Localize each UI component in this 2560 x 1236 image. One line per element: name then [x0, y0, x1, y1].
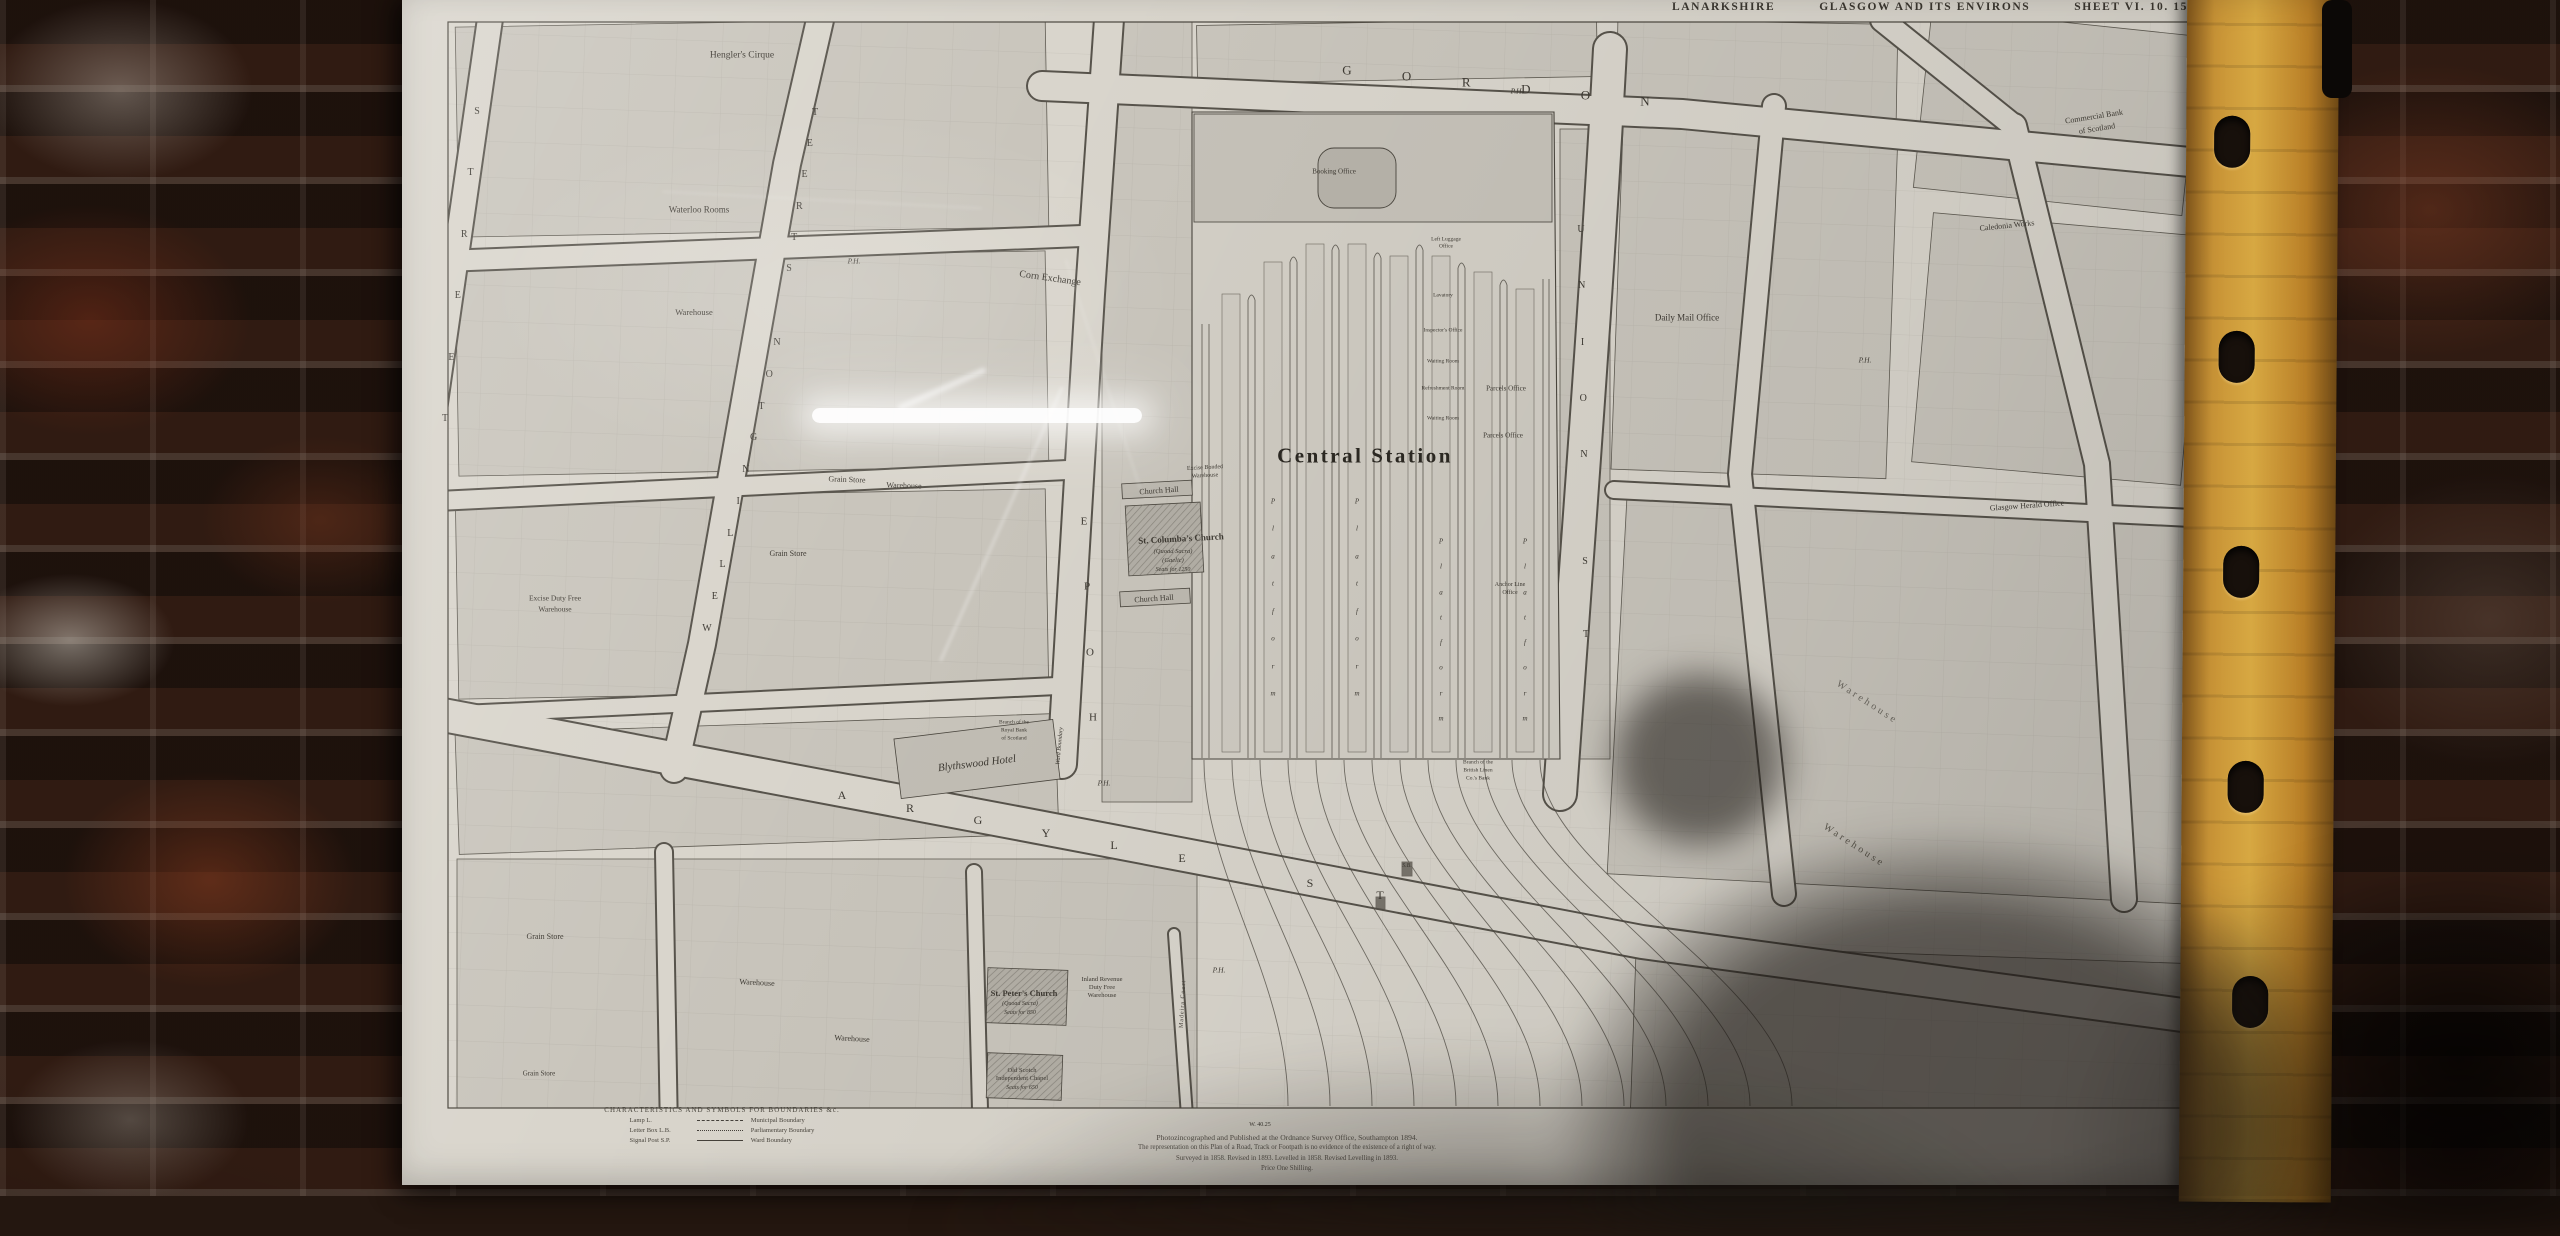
- map-label: British Linen: [1463, 768, 1492, 774]
- street-letter: L: [727, 529, 733, 539]
- street-letter: a: [1355, 553, 1359, 560]
- map-label: Warehouse: [1821, 822, 1886, 869]
- imprint-line: Price One Shilling.: [962, 1164, 1612, 1174]
- street-letter: O: [1581, 88, 1590, 101]
- street-letter: r: [1440, 690, 1443, 697]
- street-letter: a: [1523, 589, 1527, 596]
- street-letter: I: [1581, 338, 1584, 348]
- map-label: Warehouse: [1834, 679, 1899, 726]
- map-label: Madeira Court: [1179, 980, 1188, 1028]
- map-label: Caledonia Works: [1979, 219, 2035, 233]
- map-label: (Quoad Sacra): [1154, 549, 1193, 556]
- street-letter: S: [1307, 877, 1314, 889]
- map-label: Church Hall: [1134, 594, 1174, 605]
- map-label: S.B.: [1402, 863, 1412, 869]
- binder-slot: [2322, 0, 2352, 98]
- street-letter: E: [807, 139, 813, 149]
- map-label: Waterloo Rooms: [669, 206, 730, 215]
- map-label: Warehouse: [834, 1034, 870, 1044]
- street-letter: f: [1356, 608, 1358, 615]
- map-label: Grain Store: [526, 933, 563, 941]
- street-letter: o: [1355, 636, 1359, 643]
- street-letter: o: [1439, 665, 1443, 672]
- street-letter: E: [712, 592, 718, 602]
- map-label: of Scotland: [1001, 736, 1026, 742]
- map-label: (Gaelic): [1162, 558, 1184, 565]
- binder-strip: [2179, 0, 2339, 1203]
- street-letter: E: [455, 291, 461, 301]
- map-label: Excise Bonded: [1187, 464, 1223, 472]
- map-label: Independent Chapel: [996, 1076, 1048, 1083]
- legend: CHARACTERISTICS AND SYMBOLS FOR BOUNDARI…: [542, 1106, 902, 1144]
- street-letter: t: [1272, 581, 1274, 588]
- map-label: Anchor Line: [1495, 582, 1526, 588]
- legend-line-sample: [697, 1140, 743, 1141]
- street-letter: T: [442, 414, 448, 424]
- street-letter: O: [1402, 70, 1411, 83]
- street-letter: t: [1356, 581, 1358, 588]
- street-letter: I: [736, 497, 739, 507]
- map-labels-layer: Central StationHengler's CirqueWaterloo …: [402, 0, 2204, 1185]
- legend-line-sample: [697, 1120, 743, 1121]
- street-letter: W: [702, 624, 711, 634]
- street-letter: E: [1081, 517, 1088, 528]
- street-letter: E: [448, 353, 454, 363]
- street-letter: r: [1524, 690, 1527, 697]
- map-label: Commercial Bank: [2065, 108, 2124, 125]
- map-label: Branch of the: [1463, 760, 1493, 766]
- street-letter: l: [1440, 564, 1442, 571]
- map-label: Inspector's Office: [1424, 328, 1463, 334]
- street-letter: f: [1440, 640, 1442, 647]
- street-letter: r: [1356, 663, 1359, 670]
- street-letter: Y: [1042, 827, 1051, 839]
- legend-line-sample: [697, 1130, 743, 1131]
- street-letter: T: [758, 402, 764, 412]
- street-letter: P: [1355, 499, 1359, 506]
- map-label: W. 40.25: [1249, 1122, 1271, 1128]
- street-letter: U: [1577, 225, 1584, 235]
- street-letter: a: [1271, 553, 1275, 560]
- street-letter: T: [1583, 630, 1589, 640]
- binder-hole: [2214, 116, 2250, 168]
- street-letter: f: [1272, 608, 1274, 615]
- street-letter: P: [1271, 499, 1275, 506]
- legend-item: Municipal Boundary: [697, 1117, 815, 1124]
- legend-heading: CHARACTERISTICS AND SYMBOLS FOR BOUNDARI…: [542, 1106, 902, 1114]
- street-letter: T: [1376, 889, 1383, 901]
- imprint-line: Surveyed in 1858. Revised in 1893. Level…: [962, 1154, 1612, 1164]
- map-label: Warehouse: [1192, 472, 1219, 479]
- map-label: P.H.: [1511, 87, 1524, 95]
- map-label: Warehouse: [538, 605, 571, 613]
- street-letter: t: [1524, 614, 1526, 621]
- map-label: Inland Revenue: [1082, 977, 1123, 984]
- street-letter: H: [1089, 713, 1097, 724]
- binder-hole: [2223, 546, 2259, 598]
- map-label: St. Peter's Church: [991, 989, 1058, 998]
- map-label: Blythswood Hotel: [937, 754, 1016, 774]
- map-label: Parcels Office: [1486, 386, 1526, 393]
- map-label: P.H.: [1213, 966, 1226, 974]
- street-letter: E: [1178, 852, 1185, 864]
- binder-hole: [2218, 331, 2254, 383]
- legend-boundaries: Municipal BoundaryParliamentary Boundary…: [697, 1117, 815, 1144]
- imprint: Photozincographed and Published at the O…: [962, 1132, 1612, 1174]
- map-label: Church Hall: [1139, 486, 1179, 497]
- map-label: Daily Mail Office: [1655, 314, 1719, 323]
- map-label: Glasgow Herald Office: [1990, 499, 2065, 512]
- street-letter: G: [1342, 64, 1351, 77]
- map-label: Lavatory: [1433, 293, 1453, 299]
- street-letter: R: [796, 202, 803, 212]
- binder-hole: [2227, 761, 2263, 813]
- street-letter: N: [773, 338, 780, 348]
- map-label: Warehouse: [1088, 993, 1117, 1000]
- map-label: Grain Store: [828, 475, 865, 484]
- map-label: Excise Duty Free: [529, 594, 581, 602]
- street-letter: L: [1110, 839, 1117, 851]
- map-label: Refreshment Room: [1422, 386, 1465, 392]
- street-letter: r: [1272, 663, 1275, 670]
- map-label: Branch of the: [999, 720, 1029, 726]
- street-letter: S: [474, 107, 480, 117]
- street-letter: N: [1580, 450, 1587, 460]
- map-label: (Quoad Sacra): [1002, 1001, 1038, 1007]
- map-label: Booking Office: [1312, 169, 1356, 176]
- map-label: Seats for 850: [1004, 1010, 1036, 1016]
- street-letter: L: [719, 560, 725, 570]
- map-label: Left Luggage: [1431, 237, 1461, 243]
- map-label: Grain Store: [523, 1071, 555, 1078]
- street-letter: D: [1521, 82, 1530, 95]
- map-paper: LANARKSHIRE GLASGOW AND ITS ENVIRONS SHE…: [402, 0, 2204, 1185]
- street-letter: N: [1578, 281, 1585, 291]
- street-letter: E: [802, 170, 808, 180]
- binder-hole: [2232, 976, 2268, 1028]
- imprint-line: The representation on this Plan of a Roa…: [962, 1143, 1612, 1153]
- street-letter: N: [1640, 95, 1649, 108]
- map-label: Parcels Office: [1483, 433, 1523, 440]
- street-letter: S: [1582, 557, 1588, 567]
- street-letter: G: [974, 814, 983, 826]
- street-letter: o: [1523, 665, 1527, 672]
- street-letter: m: [1522, 716, 1527, 723]
- map-label: Waiting Room: [1427, 359, 1459, 365]
- street-letter: O: [1580, 394, 1587, 404]
- map-label: Warehouse: [886, 481, 922, 490]
- street-letter: R: [1462, 76, 1471, 89]
- street-letter: G: [750, 433, 757, 443]
- street-letter: O: [1086, 647, 1094, 658]
- legend-item: Signal Post S.P.: [630, 1137, 671, 1144]
- street-letter: P: [1523, 539, 1527, 546]
- map-label: Office: [1502, 590, 1517, 596]
- map-label: Waiting Room: [1427, 416, 1459, 422]
- street-letter: m: [1438, 716, 1443, 723]
- street-letter: O: [766, 370, 773, 380]
- map-label: Royal Bank: [1001, 728, 1027, 734]
- street-letter: P: [1084, 582, 1090, 593]
- map-label: Duty Free: [1089, 985, 1115, 992]
- street-letter: T: [812, 108, 818, 118]
- street-letter: m: [1354, 691, 1359, 698]
- map-label: Old Scotch: [1007, 1068, 1036, 1075]
- map-label: Seats for 1250: [1156, 567, 1191, 573]
- street-letter: T: [791, 233, 797, 243]
- legend-item: Ward Boundary: [697, 1137, 815, 1144]
- street-letter: t: [1440, 614, 1442, 621]
- street-letter: R: [461, 230, 468, 240]
- legend-item: Parliamentary Boundary: [697, 1127, 815, 1134]
- map-label: Office: [1439, 244, 1453, 250]
- legend-item: Letter Box L.B.: [630, 1127, 671, 1134]
- street-letter: a: [1439, 589, 1443, 596]
- street-letter: l: [1524, 564, 1526, 571]
- map-label: Warehouse: [739, 978, 775, 988]
- map-label: P.H.: [848, 257, 861, 265]
- map-label: Corn Exchange: [1019, 270, 1082, 289]
- map-label: Hengler's Cirque: [710, 51, 774, 61]
- map-label: Warehouse: [675, 308, 713, 317]
- street-letter: P: [1439, 539, 1443, 546]
- map-label: Seats for 650: [1006, 1085, 1038, 1091]
- street-letter: l: [1272, 526, 1274, 533]
- map-label: Ward Boundary: [1055, 727, 1064, 765]
- map-label: Grain Store: [769, 550, 806, 558]
- map-label: Co.'s Bank: [1466, 776, 1490, 782]
- street-letter: f: [1524, 640, 1526, 647]
- street-letter: A: [838, 789, 847, 801]
- street-letter: o: [1271, 636, 1275, 643]
- map-label: P.H.: [1098, 779, 1111, 787]
- legend-symbols: Lamp L.Letter Box L.B.Signal Post S.P.: [630, 1117, 671, 1144]
- map-label: Central Station: [1277, 446, 1453, 467]
- street-letter: l: [1356, 526, 1358, 533]
- street-letter: m: [1270, 691, 1275, 698]
- street-letter: S: [786, 264, 792, 274]
- street-letter: N: [742, 465, 749, 475]
- street-letter: T: [468, 168, 474, 178]
- map-label: of Scotland: [2078, 122, 2115, 136]
- photo-root: { "photo": { "colors": { "brick_dark": "…: [0, 0, 2560, 1196]
- map-label: P.H.: [1859, 356, 1872, 364]
- street-letter: R: [906, 802, 914, 814]
- legend-item: Lamp L.: [630, 1117, 671, 1124]
- map-label: St. Columba's Church: [1138, 532, 1224, 545]
- imprint-line: Photozincographed and Published at the O…: [962, 1132, 1612, 1143]
